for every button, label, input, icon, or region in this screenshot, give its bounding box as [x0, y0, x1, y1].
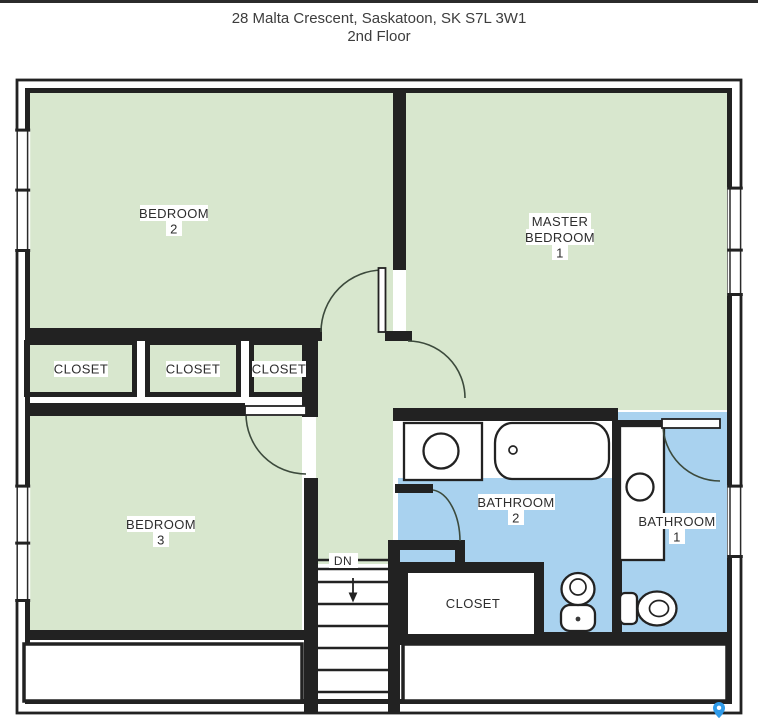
wall-stairs-east [388, 540, 400, 712]
window-bathroom1-east [728, 485, 743, 558]
bathroom1-door-leaf [662, 419, 720, 428]
svg-text:2: 2 [170, 222, 178, 237]
wall-hall-closet-east [534, 562, 544, 645]
floor-plan-page: 28 Malta Crescent, Saskatoon, SK S7L 3W1… [0, 0, 758, 720]
svg-text:1: 1 [556, 246, 564, 261]
bottom-right-room [403, 644, 727, 701]
floor-plan-canvas: BEDROOM 2 MASTER BEDROOM 1 BEDROOM 3 CL [0, 0, 758, 720]
room-label-hall-closet: CLOSET [446, 595, 501, 611]
svg-text:BATHROOM: BATHROOM [477, 495, 554, 510]
svg-text:2: 2 [512, 511, 520, 526]
bedroom2-door-leaf [379, 268, 386, 332]
svg-text:DN: DN [334, 554, 352, 568]
wall-bedroom3-east [304, 478, 318, 712]
stairs-dn-label: DN [329, 553, 358, 568]
wall-bedroom2-south [28, 328, 322, 341]
bottom-left-room [24, 644, 302, 701]
svg-text:CLOSET: CLOSET [446, 596, 500, 611]
svg-text:BEDROOM: BEDROOM [139, 206, 209, 221]
master-doorway-floor [393, 338, 406, 408]
bathroom1-toilet [620, 592, 677, 626]
window-master-east [728, 187, 743, 296]
svg-text:BATHROOM: BATHROOM [638, 514, 715, 529]
svg-text:3: 3 [157, 533, 165, 548]
bathroom1-vanity-sink [620, 426, 664, 560]
wall-bathrooms-south [542, 632, 728, 644]
wall-master-door-stub [385, 331, 412, 341]
wall-bedroom3-north [28, 403, 245, 416]
wall-master-south [393, 408, 618, 421]
svg-text:BEDROOM: BEDROOM [126, 517, 196, 532]
window-bedroom3-west [15, 485, 30, 602]
room-label-closet-middle: CLOSET [166, 361, 220, 377]
stairs [318, 560, 388, 692]
svg-text:1: 1 [673, 530, 681, 545]
window-bedroom2-west [15, 129, 30, 252]
svg-text:MASTER: MASTER [532, 214, 589, 229]
wall-hall-closet-north [398, 562, 544, 573]
svg-text:CLOSET: CLOSET [252, 362, 306, 377]
location-pin-icon [713, 702, 725, 718]
wall-bedroom2-master-divider [393, 91, 406, 270]
svg-text:CLOSET: CLOSET [166, 362, 220, 377]
bathtub-fixture [495, 423, 609, 479]
bedroom3-door-leaf [245, 406, 306, 415]
wall-bathroom2-south-l1 [393, 540, 465, 550]
room-label-closet-left: CLOSET [54, 361, 108, 377]
bathroom2-vanity-sink [404, 423, 482, 480]
svg-text:CLOSET: CLOSET [54, 362, 108, 377]
wall-bathroom2-door-stub [395, 484, 433, 493]
wall-bedroom3-south [28, 630, 304, 640]
svg-text:BEDROOM: BEDROOM [525, 230, 595, 245]
room-label-closet-right: CLOSET [252, 361, 306, 377]
